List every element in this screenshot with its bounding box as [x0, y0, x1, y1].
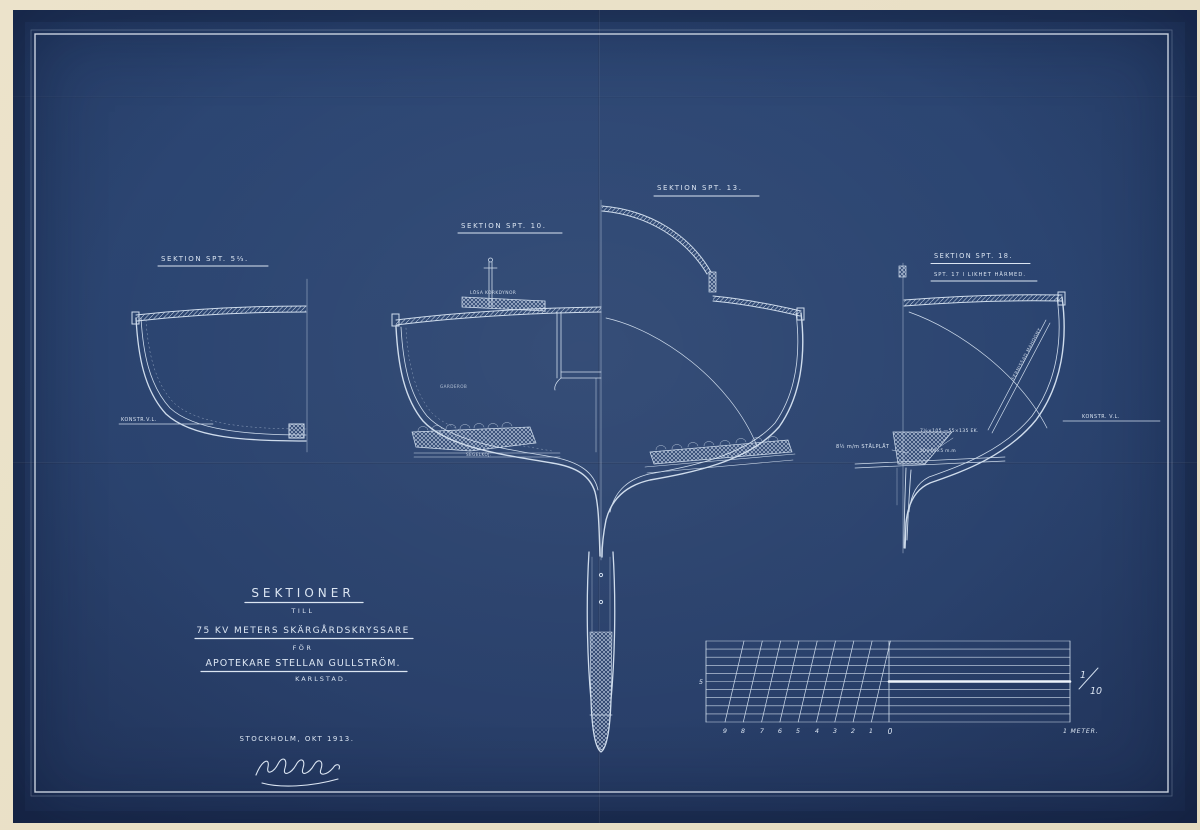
scale-num-8: 8 — [741, 727, 745, 735]
cabin-bulkhead — [557, 312, 561, 378]
cork-label: LÖSA KORKDYNOR — [470, 289, 516, 296]
scale-num-1: 1 — [869, 727, 873, 735]
scale-num-4: 4 — [815, 727, 819, 735]
scale-num-2: 2 — [851, 727, 855, 735]
hull-inner — [141, 318, 306, 435]
mahogany-label: FERNISSAD MAHOGNY — [1010, 327, 1042, 381]
hull-section-spt5 — [119, 279, 307, 452]
floor-wedge — [893, 432, 952, 464]
scale-num-9: 9 — [723, 727, 727, 735]
title-vessel: 75 KV METERS SKÄRGÅRDSKRYSSARE — [196, 624, 409, 636]
scale-num-7: 7 — [760, 727, 765, 735]
title-block: SEKTIONER TILL 75 KV METERS SKÄRGÅRDSKRY… — [195, 586, 413, 786]
hull-inner-left — [401, 327, 598, 490]
blueprint-page: { "colors": { "paper": "#e9e0c6", "bluep… — [0, 0, 1200, 830]
roof-hatch — [602, 206, 711, 274]
stanchion-ball — [489, 258, 493, 262]
scale-mid-label: 5 — [699, 678, 703, 686]
label-spt13: SEKTION SPT. 13. — [657, 184, 743, 192]
signature — [256, 759, 339, 786]
oak-dim-label: 7½×105 —55×135 EK. — [920, 427, 979, 434]
title-till: TILL — [290, 607, 314, 615]
interior-curve — [909, 312, 1047, 428]
scale-unit: 1 METER. — [1063, 728, 1099, 735]
keel-block — [289, 424, 304, 438]
coaming-post — [709, 272, 716, 292]
scale-num-3: 3 — [833, 727, 837, 735]
label-spt18: SEKTION SPT. 18. — [934, 252, 1013, 260]
place-date: STOCKHOLM, OKT 1913. — [240, 735, 355, 743]
interior-panel-curve — [606, 318, 757, 446]
steel-plate-label: 8½ m/m STÅLPLÅT — [836, 443, 890, 450]
side-table — [555, 372, 601, 390]
coachroof-arc — [602, 206, 711, 274]
title-for: FÖR — [293, 643, 314, 652]
title-city: KARLSTAD. — [295, 675, 349, 683]
label-spt18-sub: SPT. 17 I LIKHET HÄRMED. — [934, 271, 1026, 278]
blueprint-sheet: KONSTR.V.L. — [13, 10, 1197, 823]
berth-label: SEGELKOJ. — [466, 452, 492, 457]
scale-num-0: 0 — [888, 727, 893, 736]
wardrobe-label: GARDEROB — [440, 384, 467, 389]
scale-bar — [706, 641, 1098, 722]
drawing-canvas: KONSTR.V.L. — [13, 10, 1197, 823]
frame-line — [146, 320, 306, 429]
title-owner: APOTEKARE STELLAN GULLSTRÖM. — [206, 658, 401, 669]
mast-step — [899, 266, 906, 277]
scale-num-6: 6 — [778, 727, 782, 735]
floor-base — [855, 457, 1005, 468]
hull-outer-right — [602, 313, 803, 557]
waterline-label-right: KONSTR. V.L. — [1082, 414, 1120, 420]
scale-bar-labels: 9 8 7 6 5 4 3 2 1 0 5 1 METER. 1 10 — [699, 670, 1102, 736]
title-main: SEKTIONER — [251, 586, 354, 600]
berth-cushion-left — [412, 427, 536, 451]
hull-section-spt18 — [855, 263, 1160, 553]
hull-outer — [136, 318, 306, 441]
bolt-dim-label: 50×40×5 m.m — [920, 448, 956, 454]
keel-bolt-2 — [599, 600, 602, 603]
label-spt5: SEKTION SPT. 5⅔. — [161, 255, 249, 263]
keel-bolt-1 — [599, 573, 602, 576]
waterline-label: KONSTR.V.L. — [121, 417, 157, 423]
ratio-numerator: 1 — [1080, 670, 1086, 681]
lead-bulb-hatch — [590, 632, 612, 750]
hull-section-spt10-13 — [392, 200, 804, 752]
label-spt10: SEKTION SPT. 10. — [461, 222, 547, 230]
ratio-denominator: 10 — [1090, 686, 1102, 697]
cork-cushion — [462, 297, 545, 311]
hull-inner-right — [610, 313, 798, 512]
scale-num-5: 5 — [796, 727, 800, 735]
